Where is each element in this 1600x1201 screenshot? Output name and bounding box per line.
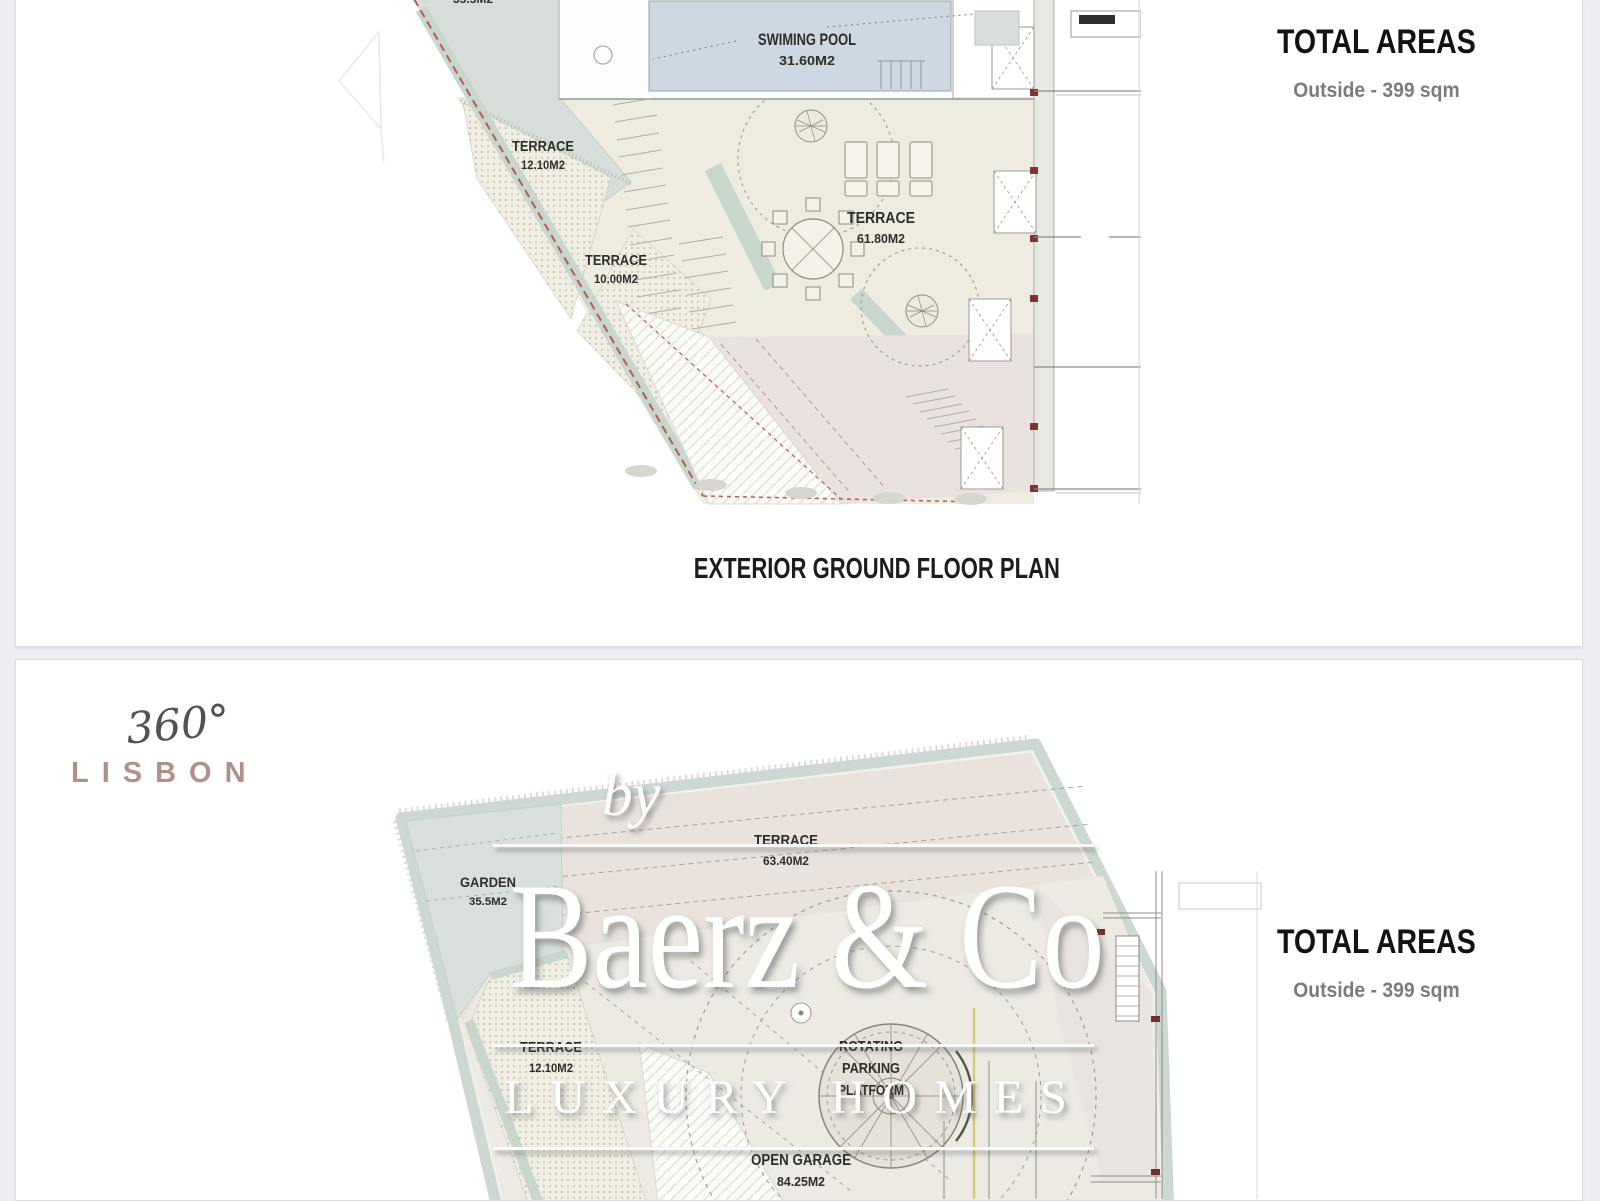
terrace-a-area: 12.10M2 xyxy=(521,158,565,172)
offsite-wall xyxy=(1179,883,1261,909)
garage-area-label: 84.25M2 xyxy=(777,1175,825,1189)
cutoff-area-label: 35.5M2 xyxy=(453,0,493,6)
rotating-label-2: PARKING xyxy=(842,1060,900,1077)
terrace-b-label: TERRACE xyxy=(585,252,647,269)
terrace-main-area: 61.80M2 xyxy=(857,232,905,246)
exterior-ground-floor-plan-image[interactable]: SWIMING POOL 31.60M2 TERRACE 12.10M2 TER… xyxy=(281,0,1141,514)
faint-plan-fragment xyxy=(339,32,384,162)
garden-area-label: 35.5M2 xyxy=(469,896,507,908)
building-wall xyxy=(1034,0,1054,491)
rotating-label-3: PLATFORM xyxy=(838,1082,904,1099)
watermark-rule-top xyxy=(493,844,1094,847)
total-areas-title: TOTAL AREAS xyxy=(1146,23,1583,62)
stairs-ladder xyxy=(1116,936,1139,1021)
total-areas-outside: Outside - 399 sqm xyxy=(1146,79,1583,103)
shaft-x-box xyxy=(994,171,1036,233)
terrace-left-area: 12.10M2 xyxy=(529,1061,573,1075)
column-dot xyxy=(799,1011,804,1016)
shaft-x-box xyxy=(961,427,1003,489)
total-areas-outside: Outside - 399 sqm xyxy=(1146,979,1583,1003)
tree-icon xyxy=(795,110,827,142)
wall-fill-dark xyxy=(1079,15,1115,24)
wall-stub-shadows xyxy=(1056,95,1141,493)
tree-icon xyxy=(906,295,938,327)
terrace-b-area: 10.00M2 xyxy=(594,272,638,286)
terrace-top-area: 63.40M2 xyxy=(763,854,809,868)
terrace-a-label: TERRACE xyxy=(512,138,574,155)
listing-page: { "card1": { "cutoff_area": "35.5M2", "p… xyxy=(0,0,1600,1200)
shaft-x-box xyxy=(969,299,1011,361)
floor-plan-card-garage: 360° LISBON xyxy=(15,659,1583,1201)
total-areas-block: TOTAL AREAS Outside - 399 sqm xyxy=(1146,923,1583,1003)
garden-label: GARDEN xyxy=(460,874,516,890)
watermark-rule-middle xyxy=(493,1044,1094,1047)
logo-360: 360° xyxy=(86,692,270,757)
pool-area: 31.60M2 xyxy=(779,53,835,68)
terrace-main-label: TERRACE xyxy=(847,210,915,227)
watermark-rule-bottom xyxy=(493,1147,1094,1150)
logo-lisbon: LISBON xyxy=(71,757,259,790)
pool-label: SWIMING POOL xyxy=(758,30,856,49)
sun-loungers xyxy=(845,142,932,196)
terrace-left-label: TERRACE xyxy=(520,1039,582,1056)
floor-plan-card-exterior: 35.5M2 xyxy=(15,0,1583,647)
garage-floor-plan-image[interactable]: TERRACE 63.40M2 GARDEN 35.5M2 TERRACE 12… xyxy=(391,721,1271,1201)
planter-box xyxy=(975,11,1019,45)
total-areas-title: TOTAL AREAS xyxy=(1146,923,1583,962)
total-areas-block: TOTAL AREAS Outside - 399 sqm xyxy=(1146,23,1583,103)
garage-label: OPEN GARAGE xyxy=(751,1152,851,1169)
plan-caption: EXTERIOR GROUND FLOOR PLAN xyxy=(597,553,1157,586)
